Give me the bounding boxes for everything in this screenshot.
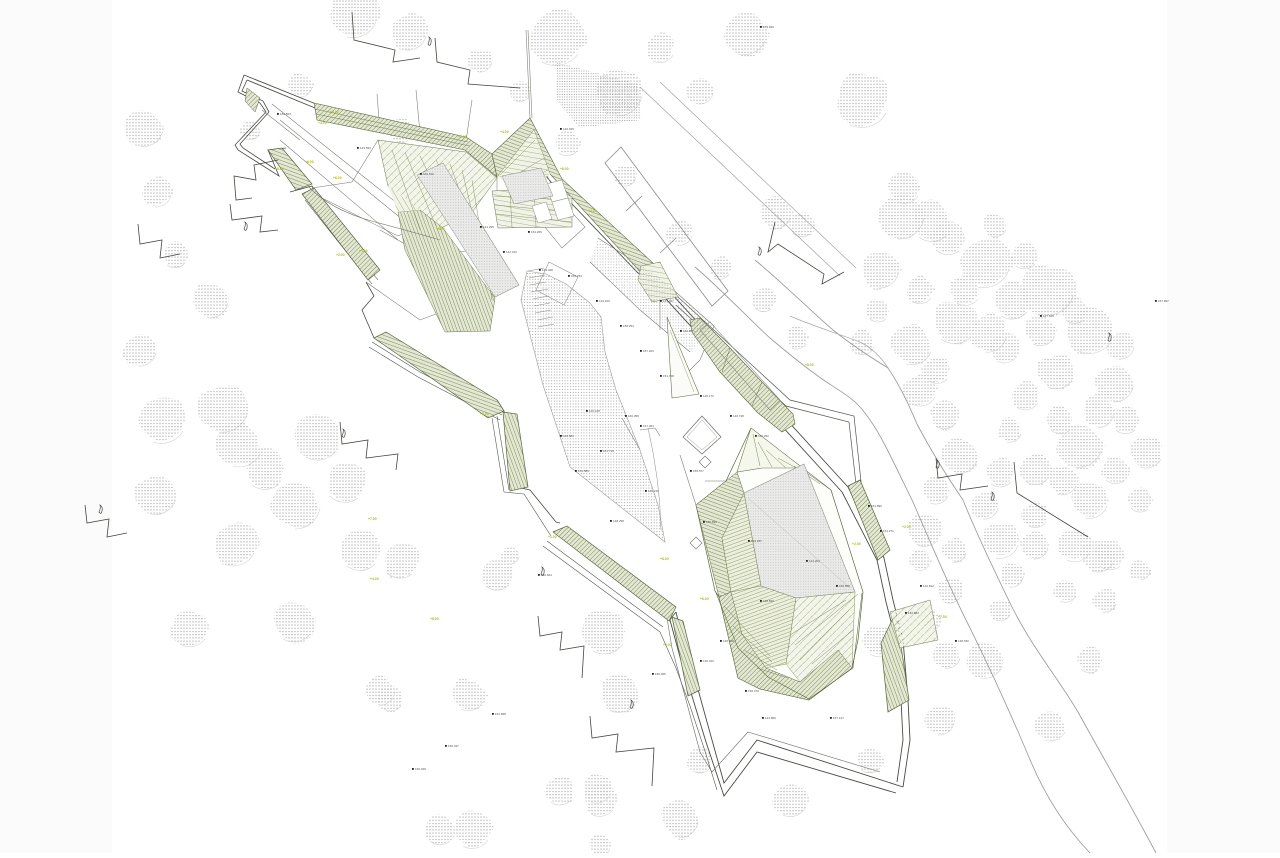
svg-text:+6.00: +6.00	[700, 597, 709, 601]
svg-text:+7.00: +7.00	[368, 517, 377, 521]
svg-text:+6.00: +6.00	[333, 176, 342, 180]
svg-text:145.628: 145.628	[723, 639, 734, 643]
svg-text:148.298: 148.298	[613, 519, 624, 523]
svg-text:143.448: 143.448	[542, 268, 553, 272]
svg-text:147.937: 147.937	[663, 299, 674, 303]
svg-text:+7.00: +7.00	[938, 615, 947, 619]
svg-text:143.218: 143.218	[648, 489, 659, 493]
svg-text:156.405: 156.405	[655, 672, 666, 676]
svg-text:156.604: 156.604	[541, 573, 552, 577]
svg-text:156.437: 156.437	[448, 744, 459, 748]
svg-text:148.590: 148.590	[763, 599, 774, 603]
svg-text:160.510: 160.510	[423, 172, 434, 176]
svg-text:143.593: 143.593	[360, 146, 371, 150]
svg-text:151.890: 151.890	[871, 504, 882, 508]
svg-text:160.984: 160.984	[908, 611, 919, 615]
svg-text:+4.00: +4.00	[370, 577, 379, 581]
svg-text:151.728: 151.728	[663, 374, 674, 378]
svg-text:143.100: 143.100	[599, 299, 610, 303]
svg-text:159.153: 159.153	[571, 274, 582, 278]
svg-text:160.358: 160.358	[628, 414, 639, 418]
svg-text:140.310: 140.310	[703, 659, 714, 663]
svg-text:150.858: 150.858	[839, 584, 850, 588]
svg-text:+8.00: +8.00	[660, 557, 669, 561]
svg-text:147.645: 147.645	[1043, 314, 1054, 318]
svg-text:152.252: 152.252	[758, 434, 769, 438]
svg-text:159.930: 159.930	[763, 25, 774, 29]
svg-text:157.127: 157.127	[833, 716, 844, 720]
svg-text:158.254: 158.254	[623, 324, 634, 328]
svg-text:151.271: 151.271	[883, 529, 894, 533]
svg-text:144.204: 144.204	[809, 559, 820, 563]
svg-text:140.172: 140.172	[703, 394, 714, 398]
svg-text:+2.00: +2.00	[852, 542, 861, 546]
svg-text:152.857: 152.857	[683, 329, 694, 333]
svg-text:+2.00: +2.00	[458, 135, 467, 139]
svg-text:147.304: 147.304	[643, 424, 654, 428]
svg-text:+1.00: +1.00	[548, 535, 557, 539]
svg-text:+6.00: +6.00	[480, 412, 489, 416]
svg-text:144.806: 144.806	[765, 716, 776, 720]
svg-text:+6.00: +6.00	[436, 227, 445, 231]
svg-text:142.812: 142.812	[923, 584, 934, 588]
svg-text:+4.00: +4.00	[663, 643, 672, 647]
svg-text:+8.00: +8.00	[560, 167, 569, 171]
svg-text:148.583: 148.583	[563, 434, 574, 438]
svg-text:160.328: 160.328	[415, 767, 426, 771]
svg-text:142.313: 142.313	[506, 250, 517, 254]
svg-text:151.585: 151.585	[578, 469, 589, 473]
svg-text:151.848: 151.848	[495, 712, 506, 716]
svg-text:+8.00: +8.00	[430, 617, 439, 621]
svg-text:+4.00: +4.00	[588, 209, 597, 213]
svg-text:+8.00: +8.00	[275, 167, 284, 171]
svg-text:157.897: 157.897	[1158, 299, 1169, 303]
svg-text:+2.00: +2.00	[336, 253, 345, 257]
svg-text:+3.00: +3.00	[318, 121, 327, 125]
svg-text:156.470: 156.470	[748, 689, 759, 693]
svg-text:+8.00: +8.00	[805, 363, 814, 367]
svg-text:+6.00: +6.00	[305, 160, 314, 164]
svg-text:149.187: 149.187	[751, 539, 762, 543]
svg-text:+2.00: +2.00	[902, 525, 911, 529]
svg-text:154.266: 154.266	[531, 230, 542, 234]
svg-text:+6.00: +6.00	[330, 110, 339, 114]
svg-text:+4.00: +4.00	[500, 130, 509, 134]
svg-text:148.630: 148.630	[958, 639, 969, 643]
svg-text:146.925: 146.925	[563, 127, 574, 131]
svg-text:155.595: 155.595	[706, 520, 717, 524]
svg-text:155.577: 155.577	[693, 469, 704, 473]
svg-text:152.503: 152.503	[280, 112, 291, 116]
svg-text:151.716: 151.716	[603, 449, 614, 453]
svg-text:157.203: 157.203	[643, 349, 654, 353]
svg-text:+4.00: +4.00	[359, 249, 368, 253]
svg-text:140.128: 140.128	[589, 409, 600, 413]
svg-text:141.295: 141.295	[483, 225, 494, 229]
svg-text:146.728: 146.728	[733, 414, 744, 418]
